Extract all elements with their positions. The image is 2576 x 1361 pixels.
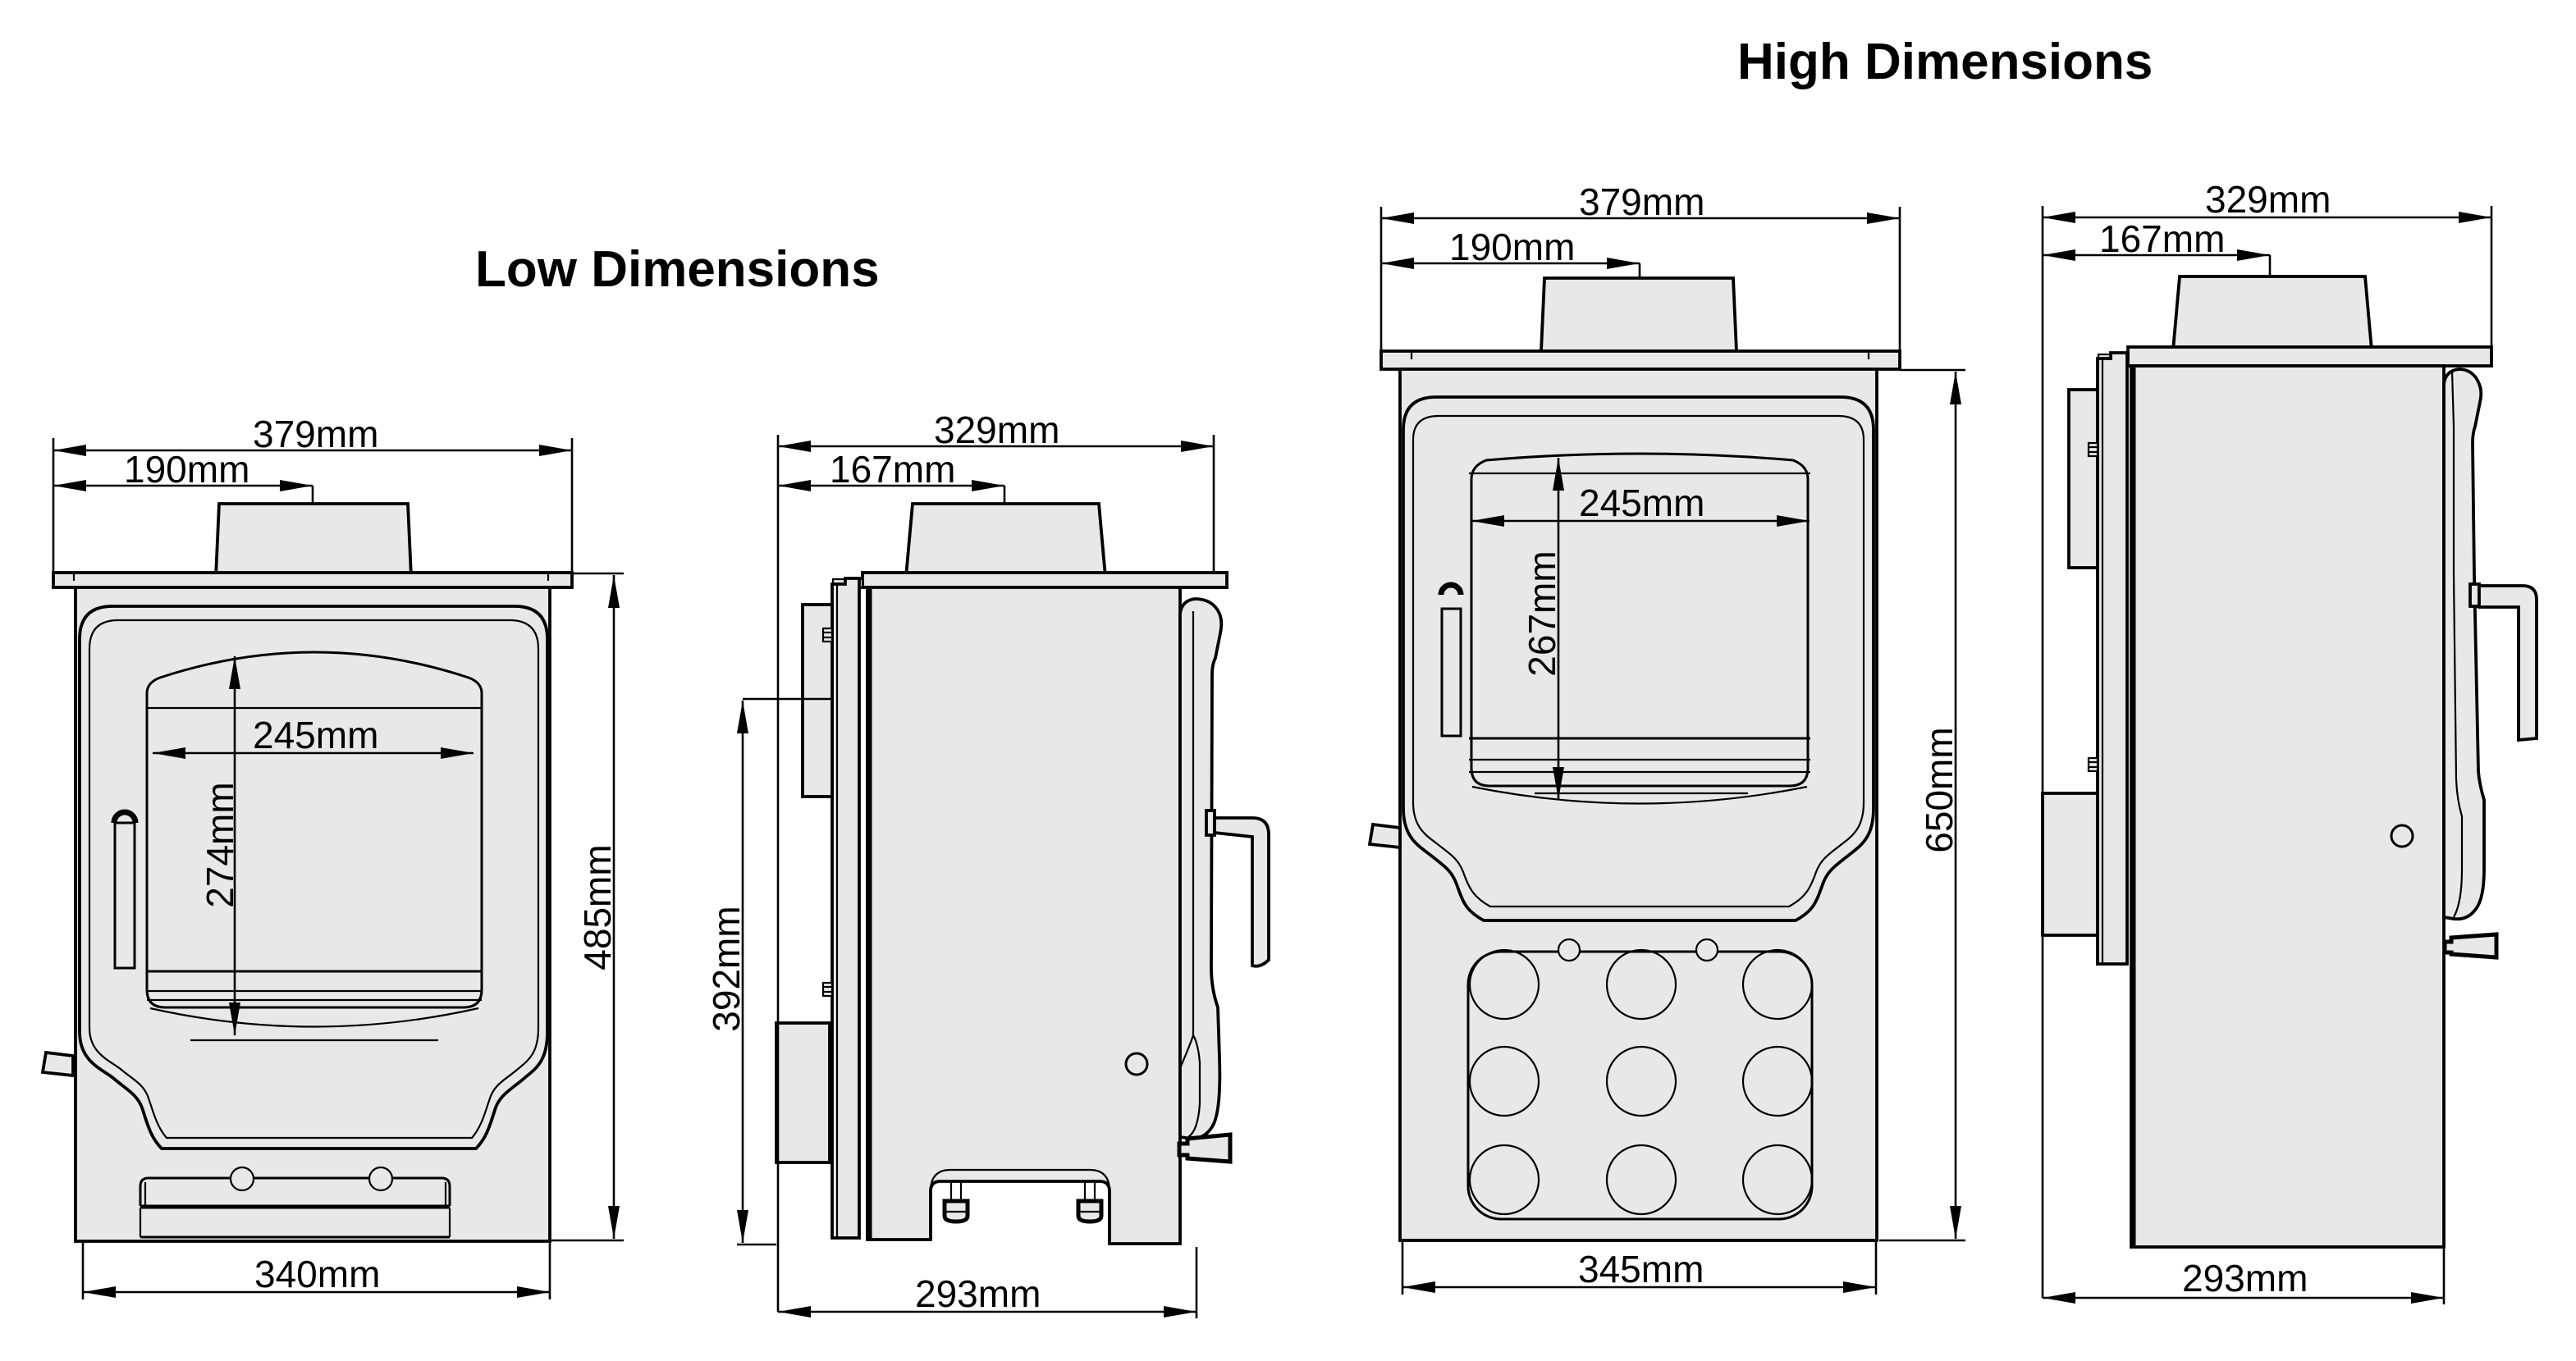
svg-text:167mm: 167mm — [2099, 217, 2225, 260]
svg-text:167mm: 167mm — [830, 448, 955, 491]
svg-text:485mm: 485mm — [576, 844, 619, 970]
svg-text:379mm: 379mm — [253, 413, 378, 455]
svg-text:293mm: 293mm — [915, 1272, 1041, 1315]
svg-text:329mm: 329mm — [934, 409, 1059, 451]
svg-text:274mm: 274mm — [199, 782, 241, 907]
svg-text:190mm: 190mm — [124, 448, 249, 491]
svg-text:267mm: 267mm — [1521, 550, 1563, 676]
svg-text:High Dimensions: High Dimensions — [1737, 34, 2153, 90]
svg-text:379mm: 379mm — [1579, 180, 1704, 223]
svg-text:245mm: 245mm — [253, 714, 378, 756]
svg-text:245mm: 245mm — [1579, 482, 1704, 524]
svg-text:650mm: 650mm — [1918, 727, 1961, 852]
svg-text:329mm: 329mm — [2205, 178, 2331, 221]
svg-text:345mm: 345mm — [1578, 1248, 1704, 1290]
svg-text:293mm: 293mm — [2182, 1257, 2308, 1299]
svg-text:Low Dimensions: Low Dimensions — [475, 241, 880, 298]
svg-text:340mm: 340mm — [254, 1253, 380, 1295]
svg-text:190mm: 190mm — [1449, 226, 1575, 268]
svg-text:392mm: 392mm — [705, 906, 748, 1031]
